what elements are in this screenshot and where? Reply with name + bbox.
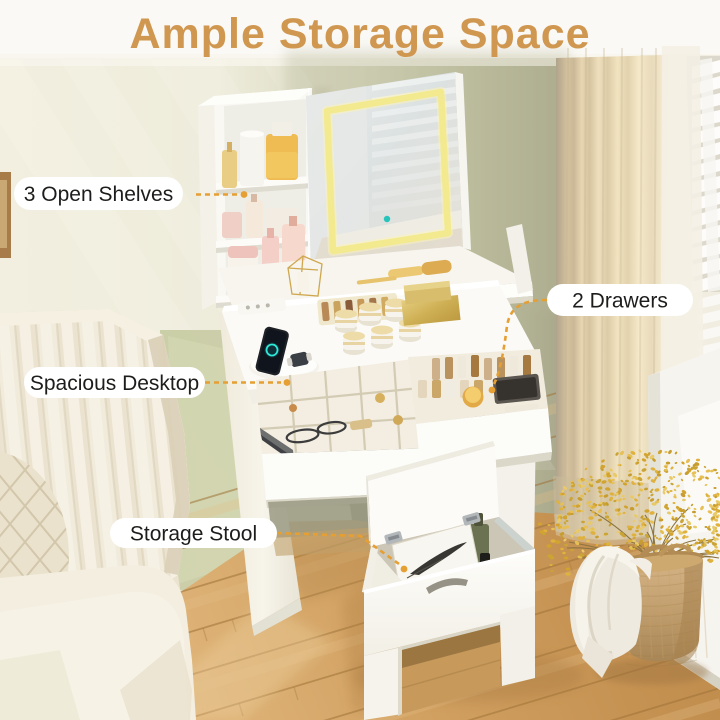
svg-text:Ample Storage Space: Ample Storage Space: [129, 10, 590, 58]
svg-text:2 Drawers: 2 Drawers: [572, 289, 668, 312]
svg-text:3 Open Shelves: 3 Open Shelves: [24, 183, 173, 206]
svg-text:Spacious Desktop: Spacious Desktop: [30, 372, 199, 395]
svg-text:Storage Stool: Storage Stool: [130, 522, 257, 545]
